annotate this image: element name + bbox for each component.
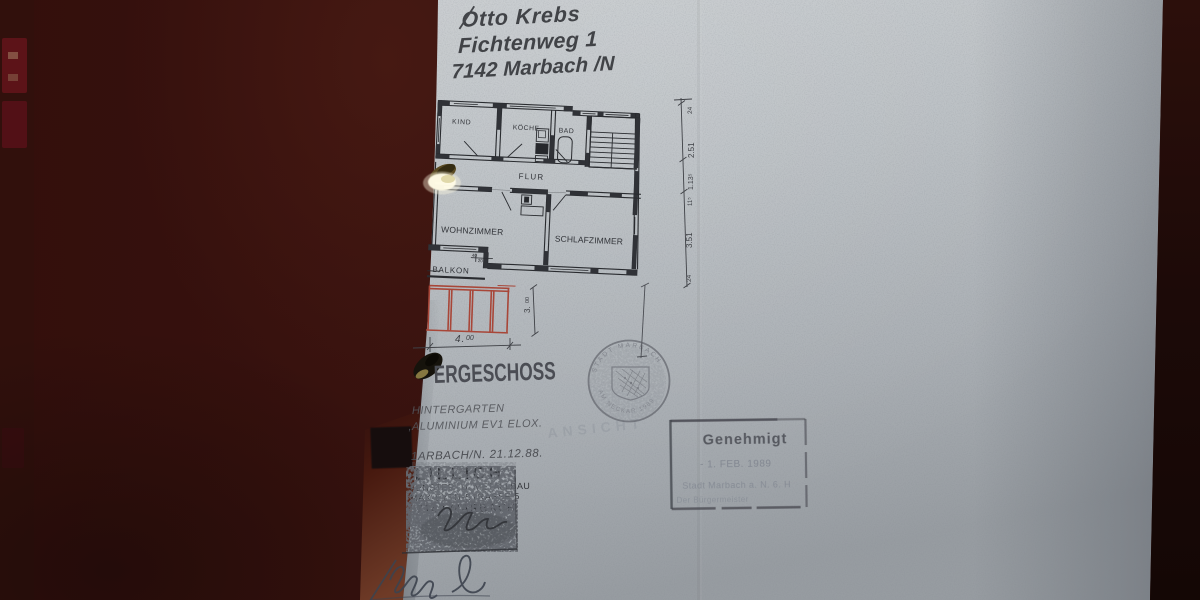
svg-text:24: 24	[687, 106, 694, 114]
svg-text:Genehmigt: Genehmigt	[703, 431, 788, 448]
svg-text:1.13⁵: 1.13⁵	[688, 173, 695, 190]
svg-text:KIND: KIND	[452, 119, 472, 127]
svg-text:FLUR: FLUR	[518, 172, 544, 182]
svg-text:Der Bürgermeister: Der Bürgermeister	[676, 495, 748, 505]
svg-text:24: 24	[686, 274, 693, 282]
svg-text:00: 00	[525, 297, 531, 303]
svg-text:2.51: 2.51	[687, 142, 696, 158]
svg-text:HINTERGARTEN: HINTERGARTEN	[412, 403, 505, 417]
svg-text:ERGESCHOSS: ERGESCHOSS	[433, 357, 556, 389]
svg-text:- 1. FEB. 1989: - 1. FEB. 1989	[700, 459, 772, 471]
svg-text:BALKON: BALKON	[432, 265, 470, 276]
svg-text:4.: 4.	[455, 334, 465, 345]
svg-text:3.51: 3.51	[685, 232, 694, 248]
svg-text:20: 20	[478, 258, 484, 263]
svg-text:KÖCHE: KÖCHE	[513, 123, 540, 132]
svg-text:3.: 3.	[523, 306, 532, 313]
svg-text:00: 00	[466, 335, 474, 342]
svg-text:BAD: BAD	[559, 128, 575, 136]
svg-text:40: 40	[472, 253, 478, 258]
svg-text:11⁵: 11⁵	[687, 197, 694, 206]
svg-text:Stadt Marbach a. N. 6. H: Stadt Marbach a. N. 6. H	[682, 479, 791, 491]
